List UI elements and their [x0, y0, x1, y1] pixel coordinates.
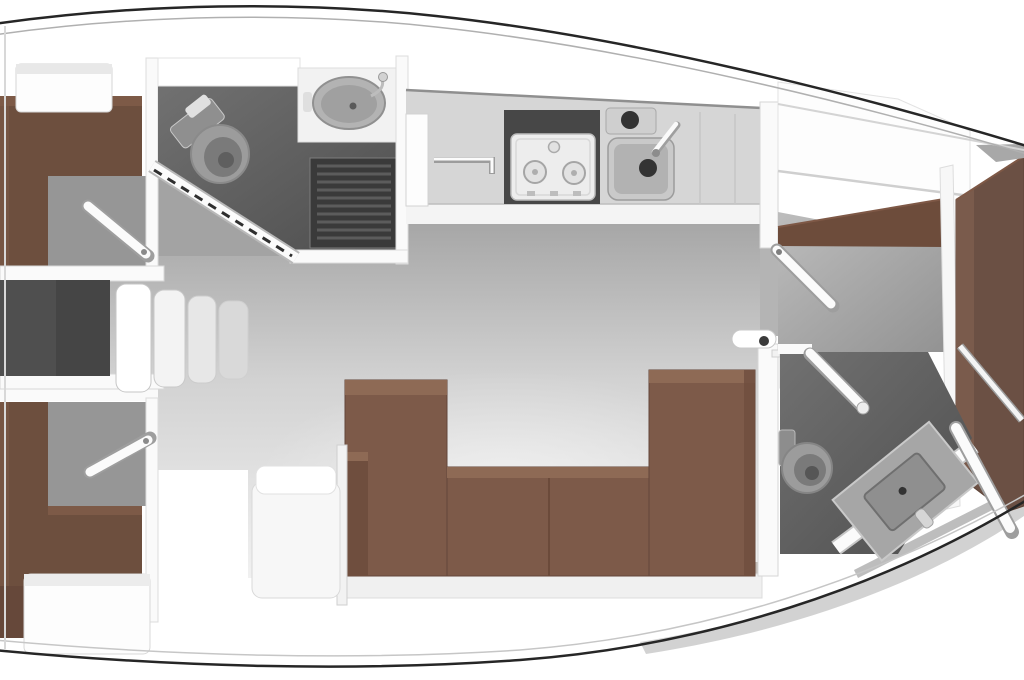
companionway-steps	[116, 284, 248, 392]
head-door-knob	[857, 402, 869, 414]
door-shadow	[777, 250, 833, 306]
hull-top-line	[0, 6, 1024, 147]
aft-cabin-port	[0, 389, 158, 654]
washbasin-console	[833, 422, 981, 564]
hull-inner-shade	[640, 498, 1024, 654]
head-cabinet-top	[158, 58, 300, 86]
engine-compartment	[0, 280, 110, 376]
sofa-center-seat	[447, 467, 649, 576]
toilet-seat	[794, 454, 826, 486]
head-wall-top	[778, 344, 812, 354]
stove-knob-1	[527, 191, 535, 196]
sink-faucet-base	[652, 149, 660, 157]
toilet-bowl	[191, 125, 249, 183]
hull-outline	[0, 6, 1024, 666]
shower-grate	[310, 158, 398, 248]
berth-top-face	[0, 96, 142, 106]
sink-basin	[614, 144, 668, 194]
basin-faucet-base	[379, 73, 388, 82]
door1-shadow	[810, 354, 862, 406]
shelf	[778, 199, 944, 247]
hull-wall-shadow	[836, 446, 974, 548]
berth	[0, 96, 142, 268]
head-door	[810, 353, 860, 404]
basin-bowl	[313, 77, 385, 129]
salon-floor-glow	[255, 370, 755, 600]
cabin-wall-right	[146, 398, 158, 622]
step-4	[219, 301, 248, 379]
head-floor	[158, 85, 396, 252]
stove-top-inner	[516, 139, 590, 195]
basin-counter	[298, 68, 398, 142]
companionway-wall-bottom	[0, 374, 164, 389]
bulkhead-lower	[758, 344, 778, 576]
v-berth-top-edge	[956, 156, 1024, 200]
companionway-wall-top	[0, 266, 164, 281]
galley-sink	[606, 108, 677, 200]
chest-lid	[256, 466, 336, 494]
stove	[504, 110, 600, 204]
top-box	[606, 108, 656, 134]
forward-head	[778, 344, 1012, 564]
door-jamb-h	[772, 350, 790, 357]
seat-chest	[252, 466, 340, 598]
stove-knob-3	[573, 191, 581, 196]
sliding-door	[152, 166, 296, 258]
companionway	[0, 266, 248, 392]
top-box-hole	[621, 111, 639, 129]
berth-foot	[0, 586, 24, 638]
berth-rail	[960, 346, 1022, 420]
v-berth	[956, 156, 1024, 512]
hull-body	[0, 6, 1024, 666]
sofa-left-armrest-top	[345, 452, 368, 461]
galley-cabinet-left	[406, 114, 428, 206]
toilet	[165, 92, 249, 183]
cabin-door	[777, 250, 831, 304]
chest-post	[337, 445, 347, 605]
berth-side-face	[0, 402, 9, 586]
soap-tray	[303, 92, 312, 112]
burner-right-center	[571, 170, 577, 176]
main-bulkhead	[732, 102, 790, 576]
toilet	[779, 430, 832, 493]
grate-frame	[310, 158, 398, 248]
toilet-tank-lid	[184, 93, 212, 118]
burner-right	[563, 162, 585, 184]
lockers-top-face	[24, 574, 150, 586]
fwd-doorway-floor	[760, 248, 780, 336]
sofa-center-top-face	[447, 467, 649, 478]
sofa-right-top-face	[649, 370, 755, 383]
sofa-left-armrest	[345, 452, 368, 576]
galley-handrail	[434, 159, 492, 173]
step-3	[188, 296, 216, 383]
toilet-bowl	[782, 443, 832, 493]
v-berth-edge-face	[956, 189, 974, 474]
galley-front	[406, 204, 762, 224]
wardrobe	[16, 64, 112, 112]
galley-back-edge	[406, 90, 762, 108]
salon-sill	[338, 574, 762, 598]
head-floor	[780, 352, 972, 554]
berth-rail-shadow	[960, 346, 1022, 420]
door-jamb-v	[780, 350, 787, 388]
cabin-floor	[48, 176, 148, 268]
galley	[406, 90, 762, 224]
burner-left	[524, 161, 546, 183]
sofa-left-top-face	[345, 380, 447, 395]
cabin-wall-right	[146, 58, 158, 272]
floorplan-canvas	[0, 0, 1024, 680]
door2-shadow	[956, 428, 1012, 532]
berth-side-face	[0, 96, 9, 268]
sofa-left-column	[345, 380, 447, 576]
locker-bottom-edge	[778, 171, 970, 196]
toilet-tank	[779, 430, 795, 466]
cabin-door	[90, 440, 148, 472]
console-top	[833, 422, 978, 561]
yacht-floorplan	[0, 0, 1024, 680]
cabin-door	[88, 206, 146, 254]
hull-top-inner-line	[0, 17, 1024, 155]
cabin-floor	[778, 212, 950, 352]
grate-slats	[317, 166, 391, 238]
toilet-bowl-inner	[805, 466, 819, 480]
sofa-shadow	[343, 562, 759, 578]
head-wall-right	[396, 56, 408, 264]
bow-deck-wedge	[976, 144, 1024, 162]
galley-handrail-shadow	[434, 160, 492, 174]
console-basin	[863, 452, 946, 532]
console-faucet	[914, 507, 935, 529]
interior-top-edge	[778, 104, 1024, 150]
hull-bottom-line	[0, 498, 1024, 667]
sliding-door-shadow	[152, 166, 296, 258]
head-wall-bottom	[290, 250, 408, 263]
lockers	[24, 574, 150, 654]
salon-floor	[104, 218, 762, 578]
console-drain	[897, 485, 908, 496]
step-2	[154, 290, 185, 387]
step-1	[116, 284, 151, 392]
sink-rim	[608, 138, 674, 200]
hull-wall	[836, 446, 974, 548]
shelf-edge	[778, 199, 944, 227]
cabin-floor	[48, 402, 148, 506]
stove-knob-2	[550, 191, 558, 196]
sliding-door-track	[154, 170, 292, 256]
basin-drain	[350, 103, 357, 110]
hull-bottom-inner-line	[0, 492, 1024, 656]
cabin-wall-top	[0, 389, 158, 401]
corridor-floor	[158, 170, 294, 256]
overhead-lockers	[778, 82, 970, 196]
door-knob	[141, 249, 147, 255]
salon	[104, 170, 780, 600]
chest-body	[252, 482, 340, 598]
stove-top	[511, 134, 595, 200]
stove-recess	[504, 110, 600, 204]
sofa-right-edge	[744, 370, 755, 576]
aft-head	[152, 56, 408, 264]
burner-pilot	[549, 142, 560, 153]
burner-left-center	[532, 169, 538, 175]
berth-door	[956, 428, 1010, 528]
forward-cabin	[776, 82, 1024, 512]
u-sofa	[345, 370, 755, 576]
sofa-right-column	[649, 370, 755, 576]
basin-faucet	[371, 78, 383, 96]
salon-furniture	[252, 370, 762, 605]
door-knob	[143, 438, 149, 444]
berth-trim	[940, 165, 960, 509]
toilet-bowl-inner	[218, 152, 234, 168]
sink-faucet	[654, 124, 676, 152]
toilet-seat	[204, 137, 242, 177]
door-shadow	[90, 438, 150, 472]
engine-compartment-light	[0, 280, 56, 376]
wardrobe-top-face	[16, 64, 112, 74]
bulkhead-upper	[760, 102, 778, 248]
berth-top-face	[48, 506, 142, 515]
latch-knob	[759, 336, 769, 346]
grab-handle	[732, 330, 776, 348]
basin-bowl-inner	[321, 85, 377, 123]
toilet-tank	[169, 97, 226, 150]
sink-faucet-shadow	[655, 125, 677, 153]
aft-cabin-starboard	[0, 58, 158, 272]
door-hinge	[776, 249, 782, 255]
washbasin	[298, 68, 398, 142]
berth	[0, 402, 142, 586]
galley-counter	[406, 90, 762, 222]
door-shadow	[88, 206, 148, 256]
hull-inner-shade-dark	[856, 496, 1010, 574]
sink-drain	[639, 159, 657, 177]
